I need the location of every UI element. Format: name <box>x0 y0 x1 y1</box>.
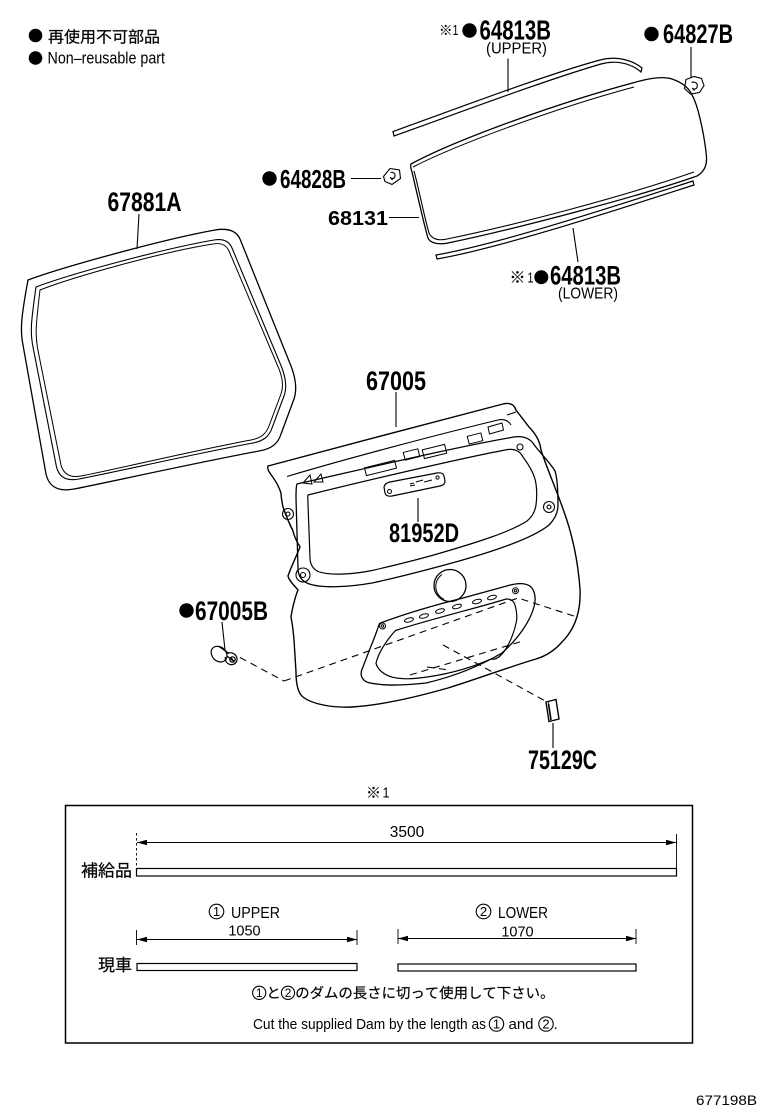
svg-text:Non–reusable part: Non–reusable part <box>48 50 166 68</box>
svg-text:67881A: 67881A <box>108 187 182 217</box>
svg-text:64828B: 64828B <box>280 164 346 194</box>
svg-text:68131: 68131 <box>328 207 388 230</box>
svg-text:and: and <box>509 1016 534 1033</box>
svg-text:1: 1 <box>213 904 220 919</box>
svg-text:2: 2 <box>542 1017 549 1032</box>
svg-text:1: 1 <box>256 986 263 1000</box>
svg-text:81952D: 81952D <box>389 518 459 548</box>
svg-text:1: 1 <box>528 271 534 287</box>
svg-text:67005: 67005 <box>366 366 426 396</box>
svg-text:1: 1 <box>383 785 390 802</box>
svg-text:2: 2 <box>480 904 487 919</box>
svg-text:LOWER: LOWER <box>498 905 548 922</box>
svg-text:.: . <box>554 1016 558 1033</box>
svg-text:3500: 3500 <box>390 824 425 841</box>
svg-text:1: 1 <box>493 1017 500 1032</box>
svg-text:1050: 1050 <box>228 924 260 940</box>
svg-text:677198B: 677198B <box>696 1092 757 1108</box>
svg-text:(UPPER): (UPPER) <box>486 41 547 58</box>
svg-text:(LOWER): (LOWER) <box>558 286 618 303</box>
svg-text:Cut the supplied Dam by the le: Cut the supplied Dam by the length as <box>253 1017 486 1033</box>
svg-text:UPPER: UPPER <box>231 905 280 922</box>
svg-text:75129C: 75129C <box>528 745 597 775</box>
svg-text:1: 1 <box>453 23 459 39</box>
svg-text:67005B: 67005B <box>195 596 268 626</box>
svg-text:2: 2 <box>285 986 292 1000</box>
svg-text:64827B: 64827B <box>663 19 733 49</box>
